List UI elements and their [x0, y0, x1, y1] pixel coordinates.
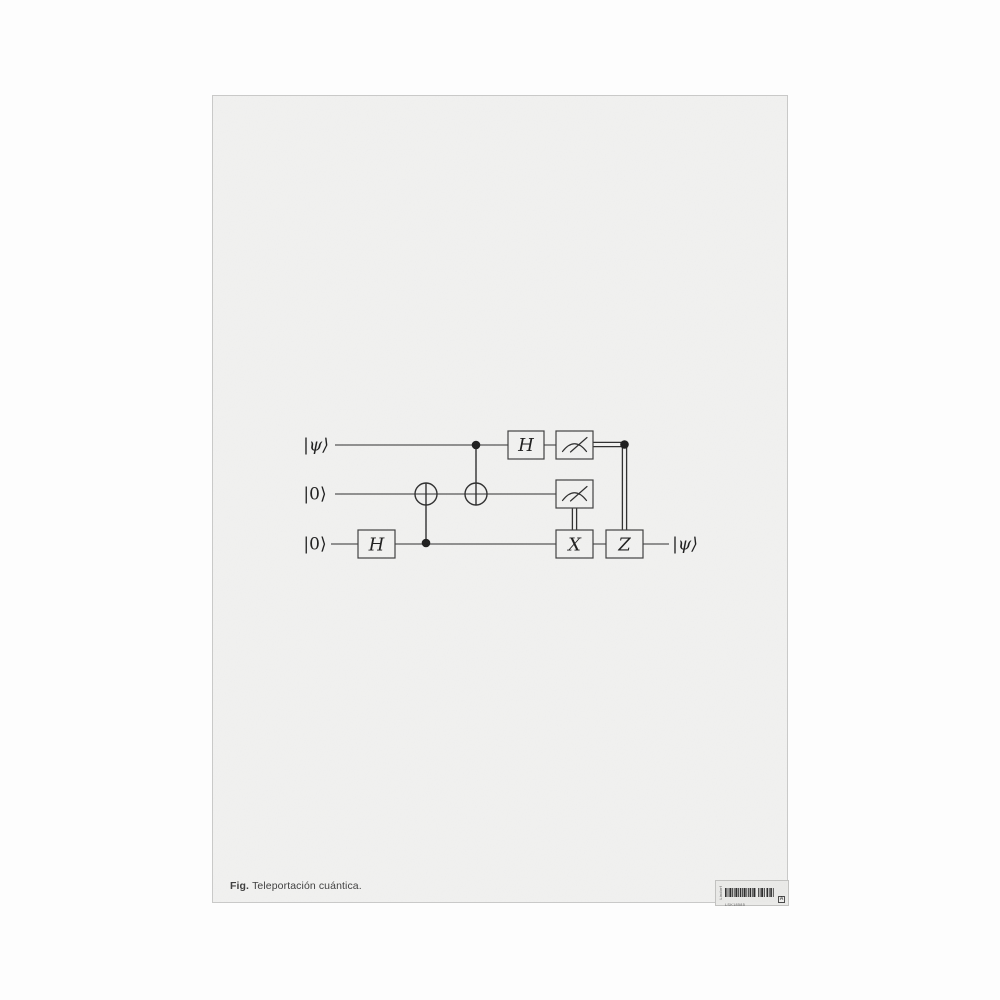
classical-wire-to-x — [572, 508, 576, 530]
sticker-code: LSK18585 — [725, 903, 785, 907]
input-ket-q2: |0⟩ — [303, 535, 326, 555]
barcode-icon — [725, 888, 775, 897]
hadamard-label-q0: H — [517, 435, 534, 456]
sticker-side-text: Lindorf — [718, 886, 723, 900]
output-ket-q2: |ψ⟩ — [672, 535, 698, 555]
hadamard-label-q2: H — [368, 535, 385, 556]
x-gate-label: X — [566, 535, 582, 556]
z-gate-label: Z — [617, 535, 631, 556]
poster-image: H H X Z |ψ⟩ |0⟩ |0⟩ |ψ⟩ Fig.Teleportació… — [0, 0, 1000, 1000]
barcode-sticker: Lindorf — [715, 880, 789, 906]
classical-junction-dot — [620, 440, 629, 449]
figure-caption-prefix: Fig. — [230, 880, 249, 892]
figure-caption-text: Teleportación cuántica. — [252, 880, 362, 892]
sticker-grade-badge: A — [778, 896, 785, 903]
input-ket-q1: |0⟩ — [303, 485, 326, 505]
quantum-teleportation-circuit: H H X Z |ψ⟩ |0⟩ |0⟩ |ψ⟩ — [291, 406, 721, 581]
input-ket-q0: |ψ⟩ — [303, 436, 329, 456]
sticker-side-label: Lindorf — [716, 881, 724, 905]
sticker-main: LSK18585 A — [724, 881, 788, 905]
classical-wire-horizontal — [593, 442, 625, 446]
measure-box-q0 — [556, 431, 593, 459]
control-dot-q0 — [472, 441, 481, 450]
classical-wire-to-z — [622, 445, 626, 531]
measure-box-q1 — [556, 480, 593, 508]
figure-caption: Fig.Teleportación cuántica. — [230, 880, 362, 892]
control-dot-q2 — [422, 539, 431, 548]
paper-sheet: H H X Z |ψ⟩ |0⟩ |0⟩ |ψ⟩ Fig.Teleportació… — [212, 95, 788, 903]
